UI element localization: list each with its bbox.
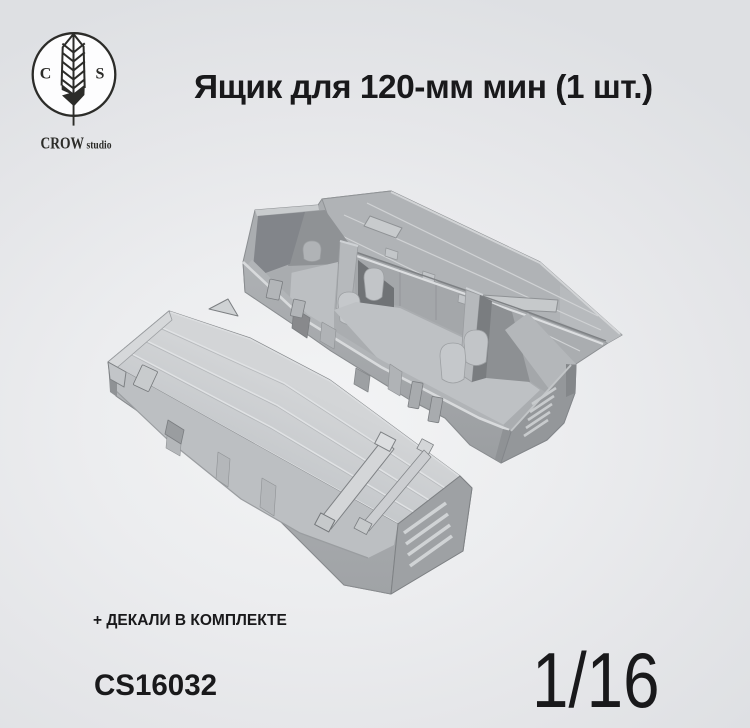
svg-text:C: C bbox=[40, 66, 52, 83]
svg-text:S: S bbox=[96, 66, 105, 83]
svg-text:CROW: CROW bbox=[41, 134, 85, 153]
svg-text:studio: studio bbox=[87, 140, 112, 152]
